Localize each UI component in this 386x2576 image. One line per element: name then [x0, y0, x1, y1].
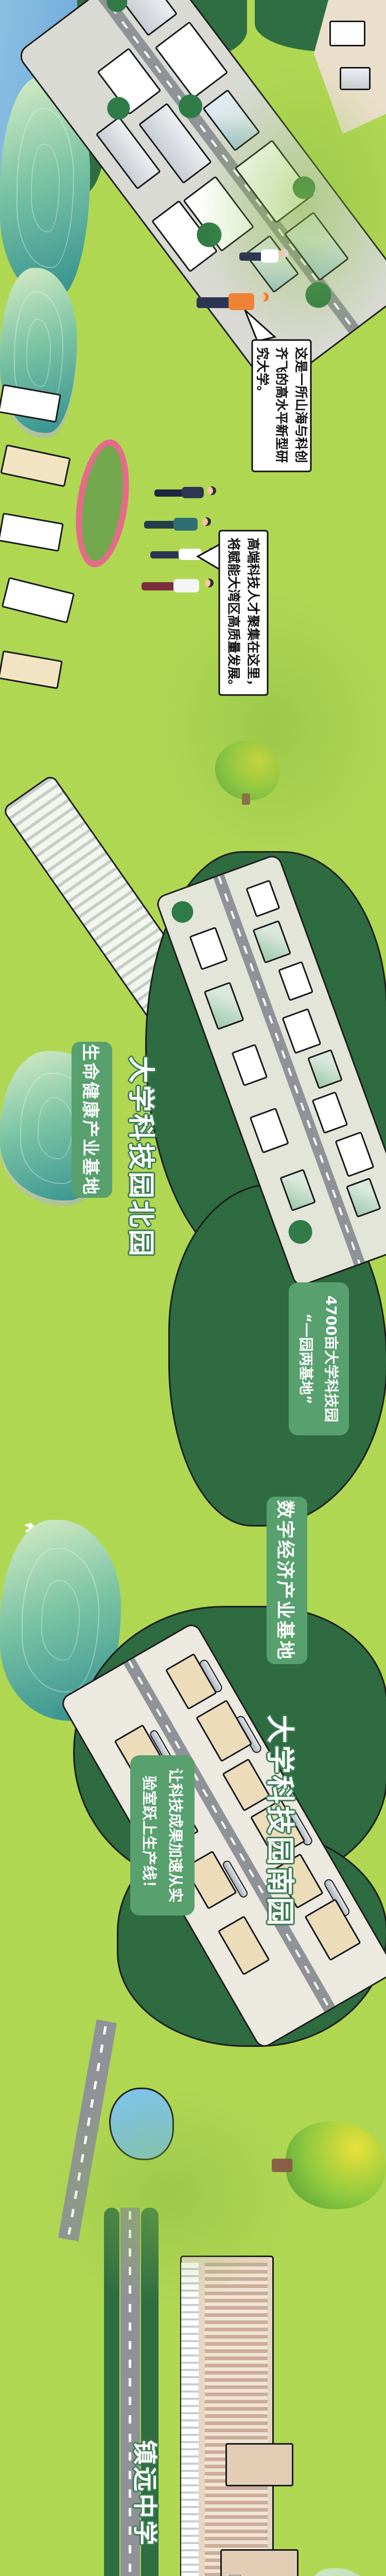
- factory-building: [165, 1653, 217, 1710]
- building: [250, 1108, 289, 1154]
- label-tech-transfer-line-1: 让科技成果加速从实: [163, 1768, 189, 1903]
- walker-4: [142, 571, 214, 601]
- school-wing: [225, 2443, 293, 2486]
- building: [189, 927, 228, 971]
- bubble-university-line-2: 齐飞的高水平新型研: [272, 347, 291, 465]
- tree-blob: [285, 1217, 315, 1247]
- bubble-university-line-1: 这是一所山海与科创: [291, 347, 311, 465]
- lawn-shade: [154, 592, 386, 860]
- school-window-band: [205, 2263, 268, 2576]
- yellow-tree-2: [286, 2122, 386, 2209]
- school-wing: [220, 2549, 299, 2576]
- worker-supervisor: [239, 241, 288, 271]
- building: [346, 1178, 381, 1218]
- bubble-talent-line-1: 高端科技人才聚集在这里，: [243, 538, 263, 688]
- illustrated-map-canvas: 这是一所山海与科创 齐飞的高水平新型研 究大学。 高端科技人才聚集在这里， 将赋…: [0, 0, 386, 2576]
- factory-building: [304, 1899, 361, 1961]
- building: [245, 879, 280, 917]
- building: [2, 577, 75, 623]
- label-park-area-line-2: “一园两基地”: [294, 1313, 319, 1404]
- building: [329, 21, 365, 46]
- building: [204, 981, 244, 1030]
- building: [279, 1169, 316, 1212]
- tree-blob: [168, 898, 196, 926]
- label-tech-transfer-box: 让科技成果加速从实 验室跃上生产线！: [130, 1755, 195, 1916]
- label-park-area-line-1: 4700亩大学科技园: [319, 1296, 344, 1422]
- building: [335, 1131, 374, 1177]
- bubble-talent-line-2: 将赋能大湾区高质量发展。: [224, 538, 244, 688]
- walker-1: [154, 479, 216, 506]
- label-digital-economy-base-text: 数字经济产业基地: [274, 1500, 301, 1660]
- label-tech-transfer-line-2: 验室跃上生产线！: [136, 1775, 163, 1895]
- building: [252, 920, 291, 964]
- label-digital-economy-base: 数字经济产业基地: [267, 1497, 307, 1664]
- bubble-talent: 高端科技人才聚集在这里， 将赋能大湾区高质量发展。: [219, 530, 269, 696]
- building: [307, 1049, 343, 1089]
- title-middle-school: 镇远中学: [130, 2437, 159, 2550]
- factory-building: [218, 1916, 270, 1976]
- walker-2: [144, 510, 211, 538]
- running-track: [68, 436, 136, 570]
- title-south-park: 大学科技园南园: [264, 1713, 296, 1929]
- bubble-university: 这是一所山海与科创 齐飞的高水平新型研 究大学。: [252, 340, 312, 472]
- school-colonnade: [181, 2263, 199, 2576]
- building: [282, 1008, 321, 1054]
- bubble-university-tail: [242, 308, 279, 343]
- label-park-area-box: 4700亩大学科技园 “一园两基地”: [289, 1282, 349, 1435]
- building: [0, 444, 71, 487]
- building: [311, 1091, 348, 1134]
- title-north-park: 大学科技园北园: [125, 1056, 156, 1257]
- bubble-university-line-3: 究大学。: [253, 347, 272, 465]
- factory-building: [196, 1700, 253, 1762]
- label-life-health-base: 生命健康产业基地: [72, 1042, 112, 1198]
- building: [278, 961, 313, 1001]
- lawn-shade: [41, 2087, 299, 2303]
- building: [231, 1044, 268, 1087]
- building: [0, 650, 63, 689]
- building: [0, 513, 64, 552]
- label-life-health-base-text: 生命健康产业基地: [79, 1044, 104, 1196]
